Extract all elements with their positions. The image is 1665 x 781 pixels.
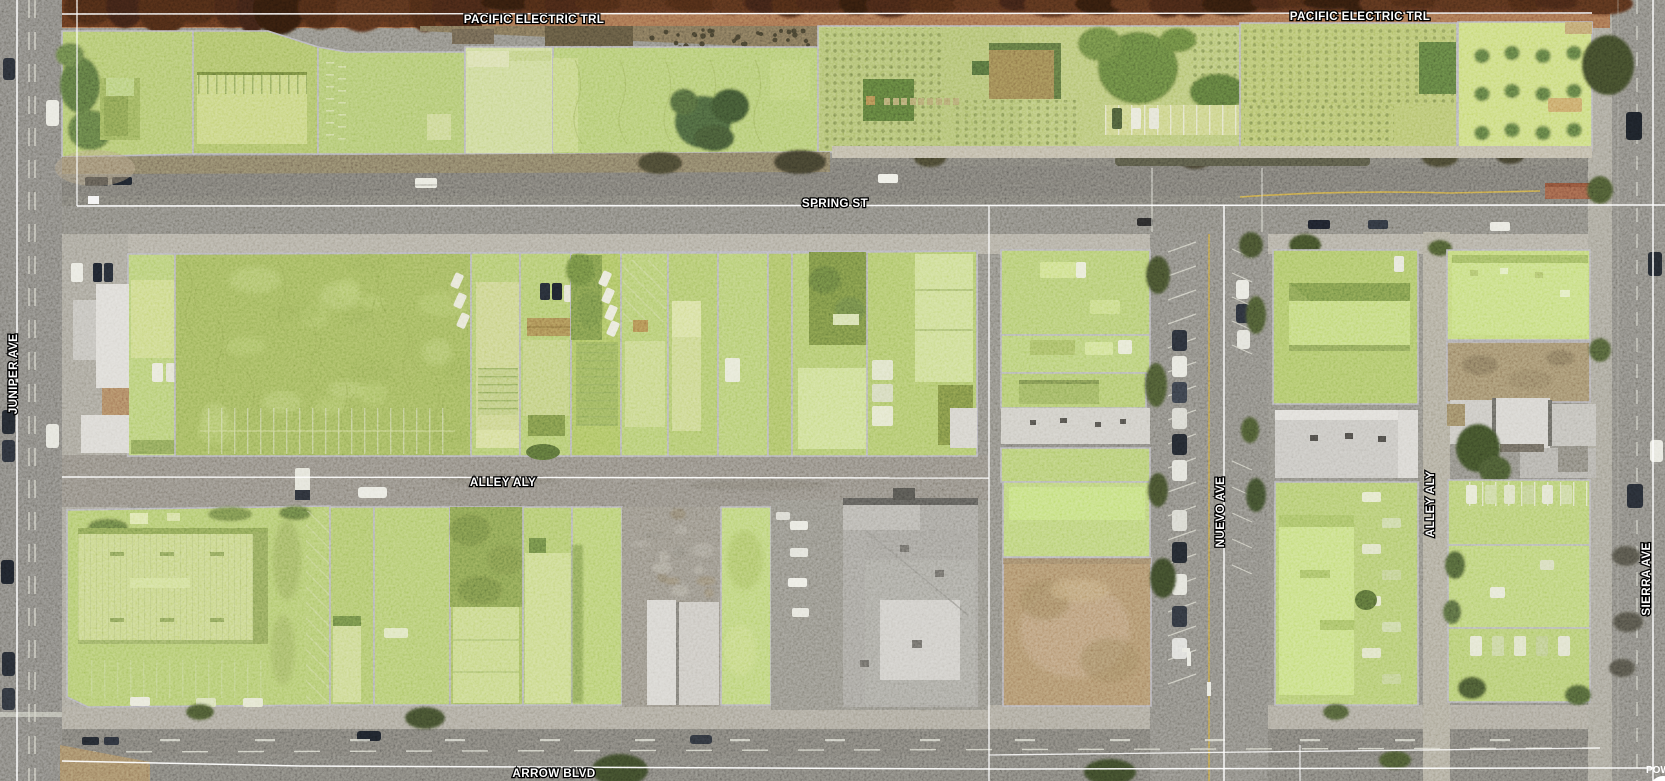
svg-text:JUNIPER AVE: JUNIPER AVE <box>7 334 20 415</box>
svg-text:POW: POW <box>1646 765 1665 776</box>
svg-text:ALLEY ALY: ALLEY ALY <box>1424 471 1437 537</box>
svg-text:PACIFIC ELECTRIC TRL: PACIFIC ELECTRIC TRL <box>464 13 605 26</box>
svg-text:NUEVO AVE: NUEVO AVE <box>1214 477 1227 548</box>
svg-text:ARROW BLVD: ARROW BLVD <box>512 767 595 780</box>
svg-text:PACIFIC ELECTRIC TRL: PACIFIC ELECTRIC TRL <box>1290 10 1431 23</box>
svg-text:ALLEY ALY: ALLEY ALY <box>470 476 536 489</box>
svg-text:SPRING ST: SPRING ST <box>802 197 869 210</box>
svg-text:SIERRA AVE: SIERRA AVE <box>1640 542 1653 615</box>
